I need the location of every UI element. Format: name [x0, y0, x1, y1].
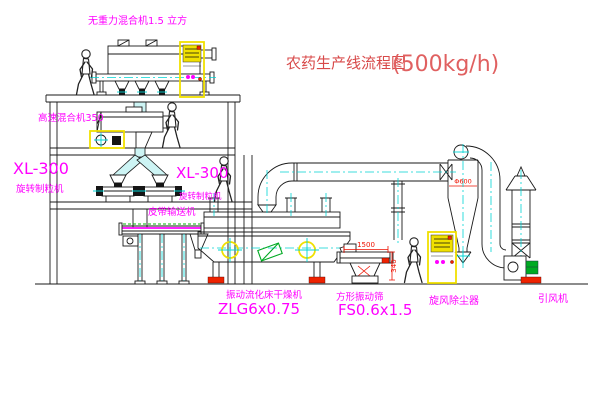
vibration-foot: [208, 277, 224, 283]
induced-draft-fan: [504, 256, 541, 283]
granulator-left: [93, 175, 143, 202]
panel-knob: [186, 75, 190, 79]
drawing-canvas: 农药生产线流程图 (500kg/h) 无重力混合机1.5 立方 高速混合机350…: [0, 0, 600, 403]
dim-screen-length: 1500: [357, 241, 375, 249]
worker-roof: [77, 50, 95, 95]
indicator-light: [198, 77, 201, 80]
panel-knob: [441, 260, 445, 264]
worker-ground: [405, 238, 423, 283]
label-gravity-mixer: 无重力混合机1.5 立方: [88, 14, 187, 27]
label-granulator-left-type: 旋转制粒机: [16, 183, 64, 195]
belt-conveyor: [119, 223, 208, 284]
label-high-speed-mixer: 高速混合机350: [38, 112, 104, 124]
label-granulator-right-type: 旋转制粒机: [179, 191, 222, 202]
outer-column: [244, 155, 252, 284]
vibration-motor: [258, 243, 282, 261]
dosing-heads: [115, 81, 169, 95]
exhaust-elbow-duct: [258, 163, 456, 213]
roof-slab: [46, 95, 240, 102]
spring-mount: [358, 266, 370, 276]
indicator-light: [197, 46, 201, 50]
vibration-foot: [309, 277, 325, 283]
y-feed-duct: [113, 148, 167, 179]
fluid-bed-dryer: [198, 193, 356, 283]
label-dryer-model: ZLG6x0.75: [218, 300, 300, 318]
indicator-light: [448, 236, 452, 240]
return-pipe: [391, 178, 405, 246]
label-cyclone: 旋风除尘器: [429, 294, 479, 307]
title-capacity: (500kg/h): [392, 52, 499, 77]
fan-motor: [526, 261, 538, 274]
high-speed-mixer: [90, 102, 169, 148]
dim-cyclone-diameter: Φ600: [454, 178, 472, 186]
dryer-nozzles: [208, 193, 332, 216]
panel-knob: [191, 75, 195, 79]
indicator-light: [450, 260, 453, 263]
control-cabinet-right: [428, 232, 456, 283]
fan-base: [521, 277, 541, 283]
label-granulator-right-model: XL-300: [176, 164, 228, 182]
cad-flow-diagram: 农药生产线流程图 (500kg/h) 无重力混合机1.5 立方 高速混合机350…: [0, 0, 600, 403]
label-granulator-left-model: XL-300: [13, 159, 69, 178]
discharge-chute: [130, 209, 150, 228]
label-screen-model: FS0.6x1.5: [338, 301, 412, 319]
panel-knob: [435, 260, 439, 264]
title-text: 农药生产线流程图: [286, 54, 406, 72]
dim-screen-height: 340: [390, 259, 398, 272]
label-fan: 引风机: [538, 292, 568, 305]
square-vibrating-screen: [337, 244, 395, 283]
label-belt-conveyor: 皮带输送机: [148, 206, 196, 218]
drawing-title: 农药生产线流程图 (500kg/h): [286, 52, 499, 77]
